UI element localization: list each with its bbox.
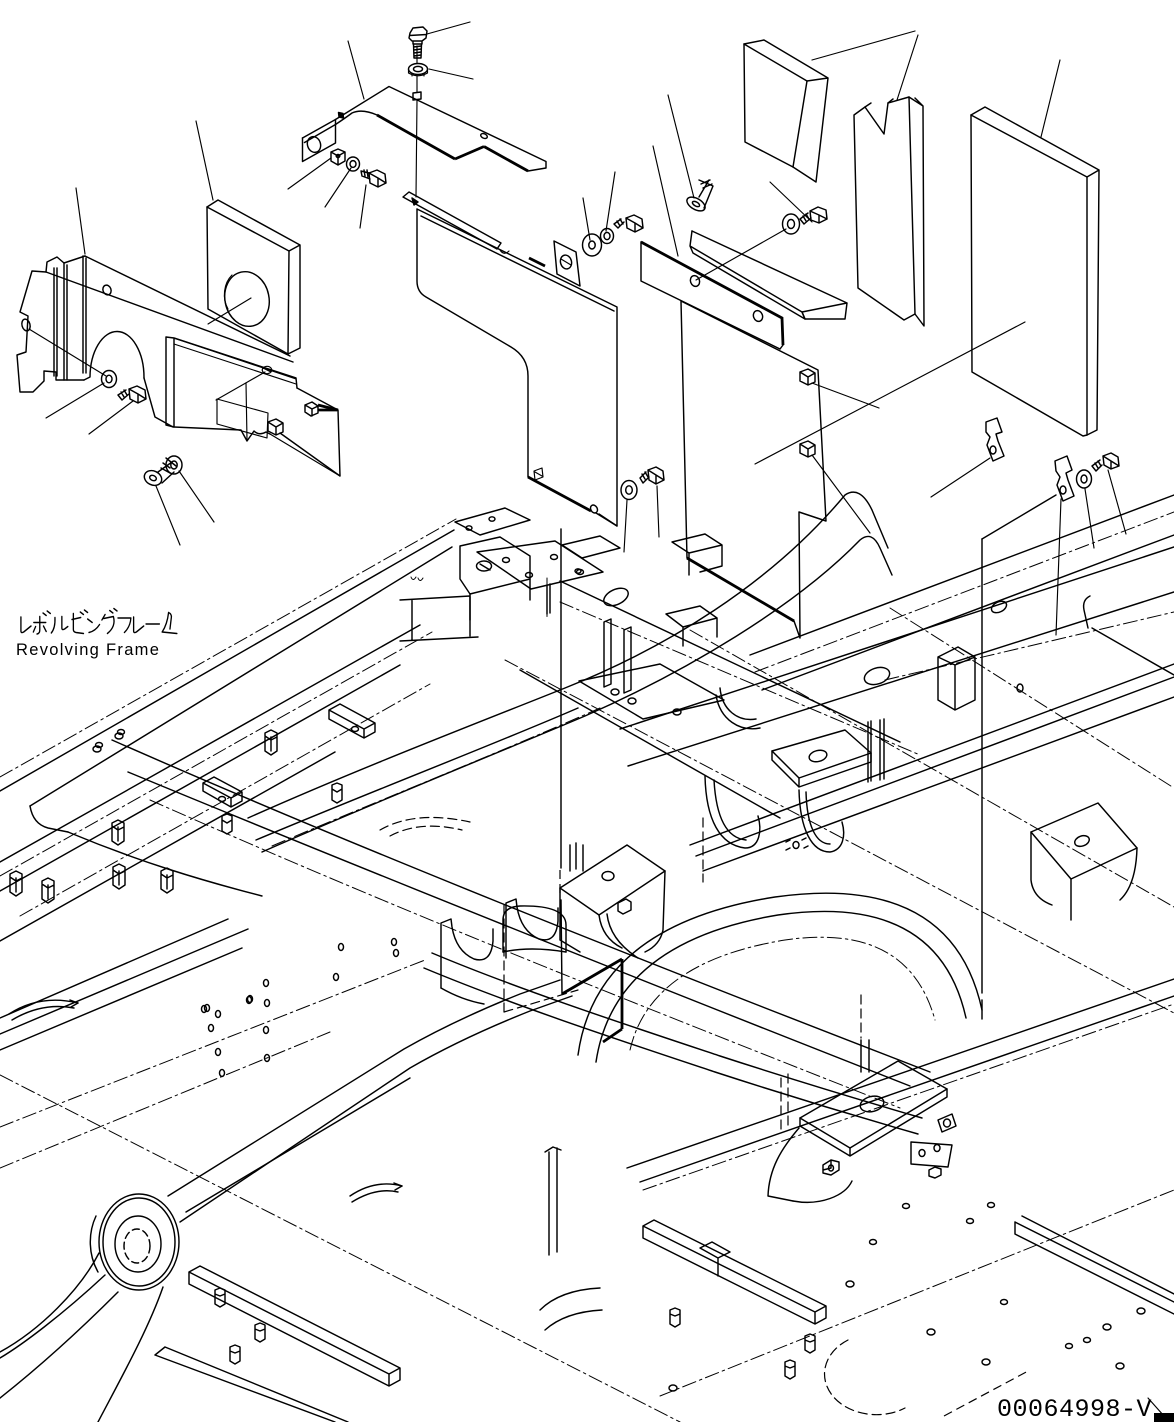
svg-text:00064998-V: 00064998-V xyxy=(997,1395,1152,1422)
svg-text:Revolving Frame: Revolving Frame xyxy=(16,641,160,659)
